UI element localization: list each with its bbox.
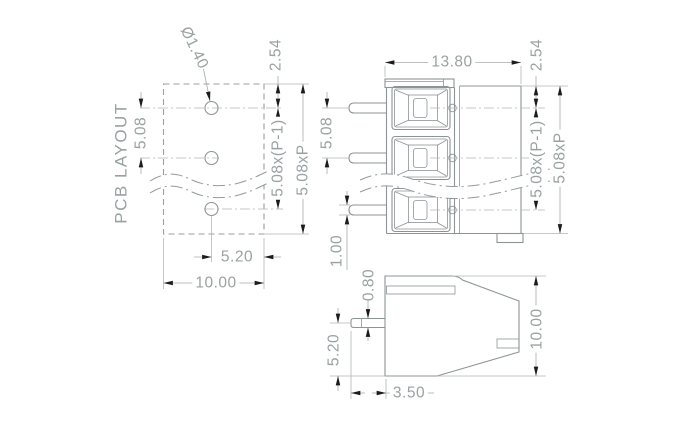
pcb-footprint bbox=[140, 84, 283, 262]
pcb-layout-title: PCB LAYOUT bbox=[113, 102, 130, 223]
hole-diameter-leader bbox=[204, 69, 211, 101]
terminal-cell-2 bbox=[392, 137, 545, 180]
side-view-top-slot bbox=[387, 286, 456, 294]
pcb-footprint-outline bbox=[164, 84, 265, 234]
side-pin-thickness-label: 0.80 bbox=[361, 269, 377, 301]
pcb-hole-to-edge-label: 5.20 bbox=[218, 249, 256, 265]
pcb-pitch-label: 5.08 bbox=[133, 114, 149, 152]
solder-pin-3 bbox=[349, 205, 387, 215]
pcb-break-line bbox=[150, 171, 268, 198]
drawing-linework bbox=[0, 0, 680, 440]
pcb-width-label: 10.00 bbox=[192, 275, 239, 291]
side-pin-to-base-label: 5.20 bbox=[326, 334, 342, 366]
front-width-label: 13.80 bbox=[428, 54, 475, 70]
front-row-offset-label: 2.54 bbox=[529, 39, 545, 71]
solder-pin-2 bbox=[349, 153, 387, 163]
pcb-row-offset-label: 2.54 bbox=[268, 39, 284, 71]
front-pole-span-label: 5.08x(P-1) bbox=[529, 117, 545, 200]
engineering-drawing-terminal-block: PCB LAYOUT Ø1.40 2.54 5.08 5.08x(P-1) 5.… bbox=[0, 0, 680, 440]
side-view-latch-slot bbox=[497, 339, 519, 348]
front-pitch-label: 5.08 bbox=[319, 114, 335, 152]
side-view-pin bbox=[351, 319, 385, 328]
front-total-span-label: 5.08xP bbox=[552, 129, 568, 186]
front-view-body bbox=[349, 79, 545, 243]
pcb-pole-span-label: 5.08x(P-1) bbox=[270, 116, 286, 199]
solder-pin-1 bbox=[349, 103, 387, 113]
pcb-total-span-label: 5.08xP bbox=[295, 141, 311, 198]
front-view-foot bbox=[497, 234, 523, 243]
side-pin-length-label: 3.50 bbox=[390, 385, 428, 401]
terminal-cell-1 bbox=[392, 87, 545, 130]
side-height-label: 10.00 bbox=[529, 305, 545, 352]
front-pin-width-label: 1.00 bbox=[329, 235, 345, 267]
